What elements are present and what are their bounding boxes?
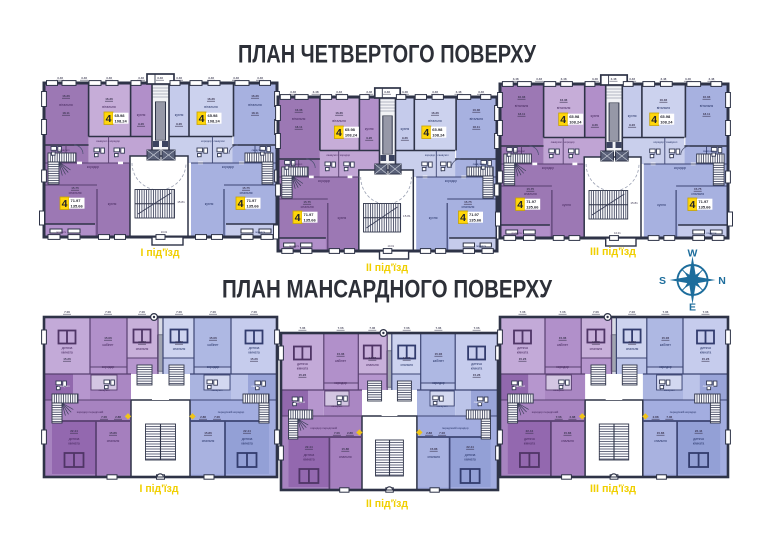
- svg-text:кімната: кімната: [517, 351, 528, 355]
- svg-text:16.36: 16.36: [207, 97, 215, 101]
- svg-text:спальня: спальня: [107, 439, 120, 443]
- svg-text:санвузол: санвузол: [473, 163, 484, 166]
- svg-text:7.06: 7.06: [474, 326, 480, 330]
- svg-text:15.06: 15.06: [104, 336, 112, 340]
- svg-text:3.48: 3.48: [611, 77, 617, 81]
- svg-text:14.77: 14.77: [592, 340, 600, 344]
- svg-text:7.06: 7.06: [435, 326, 441, 330]
- svg-text:кабінет: кабінет: [660, 343, 672, 347]
- svg-text:108.24: 108.24: [115, 119, 128, 124]
- svg-text:передпокій коридор: передпокій коридор: [218, 410, 245, 414]
- svg-text:кухня: кухня: [338, 216, 347, 220]
- svg-text:71.97: 71.97: [247, 198, 258, 203]
- svg-text:15.81: 15.81: [177, 200, 185, 204]
- svg-text:вітальня: вітальня: [292, 117, 306, 121]
- svg-text:15.06: 15.06: [337, 352, 345, 356]
- svg-text:3.48: 3.48: [402, 90, 408, 94]
- svg-text:14.77: 14.77: [403, 356, 411, 360]
- svg-text:дитяча: дитяча: [700, 346, 711, 350]
- svg-text:15.75: 15.75: [303, 200, 311, 204]
- svg-text:3.48: 3.48: [257, 76, 263, 80]
- svg-text:7.06: 7.06: [520, 310, 526, 314]
- svg-text:3.48: 3.48: [478, 90, 484, 94]
- svg-text:кухня: кухня: [108, 202, 117, 206]
- svg-text:спальня: спальня: [202, 439, 215, 443]
- svg-text:18.11: 18.11: [62, 111, 70, 115]
- svg-text:108.24: 108.24: [660, 120, 673, 125]
- svg-text:коридор передпокій: коридор передпокій: [311, 426, 338, 430]
- svg-text:7.06: 7.06: [251, 310, 257, 314]
- svg-text:7.06: 7.06: [662, 310, 668, 314]
- svg-text:спальня: спальня: [136, 347, 149, 351]
- svg-text:коридор передпокій: коридор передпокій: [532, 410, 559, 414]
- svg-text:санвузол: санвузол: [58, 385, 70, 388]
- svg-text:18.11: 18.11: [518, 112, 526, 116]
- svg-text:16.36: 16.36: [703, 95, 711, 99]
- svg-text:вітальня: вітальня: [248, 103, 262, 107]
- svg-text:E: E: [689, 302, 696, 314]
- svg-text:санвузол / коридор: санвузол / коридор: [326, 153, 350, 157]
- svg-text:спальня: спальня: [691, 192, 704, 196]
- svg-text:коридор: коридор: [87, 165, 99, 169]
- svg-text:кухня: кухня: [628, 114, 637, 118]
- svg-text:3.48: 3.48: [708, 77, 714, 81]
- svg-text:7.06: 7.06: [176, 310, 182, 314]
- svg-text:кімната: кімната: [303, 458, 314, 462]
- svg-text:4: 4: [460, 212, 466, 224]
- svg-text:N: N: [718, 275, 726, 287]
- svg-text:спальня: спальня: [561, 439, 574, 443]
- svg-text:спальня: спальня: [626, 347, 639, 351]
- svg-text:кабінет: кабінет: [102, 343, 114, 347]
- svg-text:14.77: 14.77: [369, 356, 377, 360]
- svg-text:15.06: 15.06: [435, 352, 443, 356]
- svg-text:16.36: 16.36: [660, 98, 668, 102]
- svg-text:10.01: 10.01: [161, 230, 168, 234]
- svg-text:коридор / санвузол: коридор / санвузол: [425, 153, 449, 157]
- svg-text:16.36: 16.36: [105, 97, 113, 101]
- svg-text:дитяча: дитяча: [62, 346, 73, 350]
- svg-text:15.86: 15.86: [109, 431, 117, 435]
- svg-text:71.97: 71.97: [71, 198, 82, 203]
- svg-text:108.24: 108.24: [432, 133, 445, 138]
- svg-text:3.48: 3.48: [685, 77, 691, 81]
- svg-text:16.36: 16.36: [335, 111, 343, 115]
- svg-text:вітальня: вітальня: [657, 106, 671, 110]
- svg-text:ІІІ під'їзд: ІІІ під'їзд: [590, 246, 636, 258]
- svg-text:10.01: 10.01: [388, 244, 395, 248]
- svg-text:кімната: кімната: [700, 351, 711, 355]
- svg-text:22.44: 22.44: [526, 429, 534, 433]
- svg-text:дитяча: дитяча: [693, 437, 704, 441]
- svg-text:3.48: 3.48: [384, 90, 390, 94]
- svg-text:спальня: спальня: [366, 363, 379, 367]
- svg-text:3.48: 3.48: [208, 76, 214, 80]
- svg-text:санвузол / коридор: санвузол / коридор: [96, 139, 120, 143]
- svg-text:коридор / санвузол: коридор / санвузол: [201, 139, 225, 143]
- svg-text:18.11: 18.11: [473, 125, 481, 129]
- svg-text:спальня: спальня: [339, 455, 352, 459]
- svg-text:9.26: 9.26: [402, 136, 408, 140]
- svg-text:2.88: 2.88: [347, 431, 353, 435]
- svg-text:7.06: 7.06: [214, 415, 220, 419]
- svg-text:коридор: коридор: [659, 365, 672, 369]
- svg-text:3.48: 3.48: [81, 76, 87, 80]
- svg-text:7.06: 7.06: [369, 326, 375, 330]
- svg-text:спальня: спальня: [400, 363, 413, 367]
- svg-text:15.81: 15.81: [403, 214, 411, 218]
- svg-text:16.36: 16.36: [295, 108, 303, 112]
- svg-text:3.48: 3.48: [233, 76, 239, 80]
- svg-text:подвір'я: подвір'я: [289, 244, 299, 248]
- svg-text:подвір'я: подвір'я: [56, 230, 66, 234]
- svg-text:4: 4: [238, 198, 244, 210]
- svg-text:15.26: 15.26: [63, 357, 71, 361]
- svg-text:7.06: 7.06: [338, 326, 344, 330]
- svg-text:коридор: коридор: [207, 365, 220, 369]
- svg-text:3.48: 3.48: [336, 90, 342, 94]
- svg-text:7.06: 7.06: [139, 310, 145, 314]
- svg-text:14.77: 14.77: [175, 340, 183, 344]
- svg-text:І під'їзд: І під'їзд: [140, 483, 179, 495]
- svg-text:спальня: спальня: [461, 205, 474, 209]
- svg-text:3.48: 3.48: [536, 77, 542, 81]
- svg-text:135.66: 135.66: [698, 205, 711, 210]
- svg-text:кімната: кімната: [61, 351, 72, 355]
- svg-text:спальня: спальня: [301, 205, 314, 209]
- svg-text:дитяча: дитяча: [69, 437, 80, 441]
- svg-text:15.75: 15.75: [694, 187, 702, 191]
- svg-text:3.48: 3.48: [513, 77, 519, 81]
- svg-text:ПЛАН МАНСАРДНОГО ПОВЕРХУ: ПЛАН МАНСАРДНОГО ПОВЕРХУ: [222, 276, 552, 304]
- svg-text:16.36: 16.36: [251, 94, 259, 98]
- svg-text:3.48: 3.48: [561, 77, 567, 81]
- svg-text:7.06: 7.06: [556, 415, 562, 419]
- svg-text:санвузол: санвузол: [664, 389, 675, 392]
- svg-text:135.66: 135.66: [247, 204, 260, 209]
- svg-text:вітальня: вітальня: [204, 105, 218, 109]
- svg-text:коридор: коридор: [222, 165, 234, 169]
- svg-text:4: 4: [62, 198, 68, 210]
- svg-text:дитяча: дитяча: [249, 346, 260, 350]
- svg-text:дитяча: дитяча: [304, 453, 315, 457]
- svg-text:71.97: 71.97: [698, 199, 709, 204]
- svg-text:санвузол: санвузол: [99, 389, 110, 392]
- svg-text:3.48: 3.48: [176, 76, 182, 80]
- svg-text:санвузол: санвузол: [474, 401, 486, 404]
- svg-text:7.06: 7.06: [64, 310, 70, 314]
- svg-text:санвузол: санвузол: [514, 150, 525, 153]
- svg-text:15.26: 15.26: [702, 357, 710, 361]
- svg-text:2.88: 2.88: [653, 415, 659, 419]
- svg-text:кабінет: кабінет: [207, 343, 219, 347]
- svg-text:4: 4: [336, 127, 342, 139]
- svg-text:кімната: кімната: [471, 367, 482, 371]
- svg-text:15.75: 15.75: [464, 200, 472, 204]
- svg-text:15.86: 15.86: [430, 447, 438, 451]
- svg-text:санвузол: санвузол: [703, 150, 714, 153]
- svg-text:подвір'я: подвір'я: [706, 231, 716, 235]
- svg-text:15.75: 15.75: [527, 187, 535, 191]
- svg-text:108.24: 108.24: [569, 120, 582, 125]
- svg-text:2.88: 2.88: [426, 431, 432, 435]
- svg-text:кабінет: кабінет: [335, 359, 347, 363]
- svg-text:дитяча: дитяча: [524, 437, 535, 441]
- svg-text:кухня: кухня: [175, 113, 184, 117]
- svg-text:7.06: 7.06: [560, 310, 566, 314]
- svg-text:16.36: 16.36: [560, 98, 568, 102]
- svg-text:3.48: 3.48: [432, 90, 438, 94]
- svg-text:S: S: [659, 275, 666, 287]
- svg-text:3.48: 3.48: [138, 76, 144, 80]
- svg-text:дитяча: дитяча: [517, 346, 528, 350]
- svg-text:4: 4: [199, 113, 205, 125]
- svg-text:коридор: коридор: [445, 179, 457, 183]
- svg-text:2.88: 2.88: [115, 415, 121, 419]
- svg-text:3.48: 3.48: [57, 76, 63, 80]
- svg-text:7.06: 7.06: [105, 310, 111, 314]
- svg-text:15.06: 15.06: [209, 336, 217, 340]
- svg-text:9.26: 9.26: [629, 123, 635, 127]
- svg-text:15.26: 15.26: [473, 373, 481, 377]
- svg-text:санвузол: санвузол: [703, 385, 715, 388]
- svg-text:санвузол: санвузол: [294, 401, 306, 404]
- svg-text:санвузол: санвузол: [331, 405, 342, 408]
- svg-text:65.98: 65.98: [660, 114, 671, 119]
- svg-text:3.48: 3.48: [313, 90, 319, 94]
- svg-text:15.75: 15.75: [242, 186, 250, 190]
- svg-text:71.97: 71.97: [526, 199, 537, 204]
- svg-text:2.88: 2.88: [569, 415, 575, 419]
- svg-text:2.88: 2.88: [200, 415, 206, 419]
- svg-text:спальня: спальня: [240, 191, 253, 195]
- svg-text:вітальня: вітальня: [700, 104, 714, 108]
- svg-text:16.36: 16.36: [518, 95, 526, 99]
- svg-text:15.86: 15.86: [564, 431, 572, 435]
- svg-text:дитяча: дитяча: [242, 437, 253, 441]
- svg-text:7.06: 7.06: [703, 310, 709, 314]
- svg-text:спальня: спальня: [69, 191, 82, 195]
- svg-text:вітальня: вітальня: [428, 119, 442, 123]
- svg-text:16.36: 16.36: [62, 94, 70, 98]
- svg-text:санвузол: санвузол: [437, 405, 448, 408]
- svg-text:санвузол / коридор: санвузол / коридор: [551, 140, 575, 144]
- svg-text:вітальня: вітальня: [59, 103, 73, 107]
- svg-text:кухня: кухня: [401, 127, 410, 131]
- svg-text:спальня: спальня: [654, 439, 667, 443]
- svg-text:ІІ під'їзд: ІІ під'їзд: [366, 498, 408, 510]
- svg-text:4: 4: [106, 113, 112, 125]
- svg-text:3.48: 3.48: [660, 77, 666, 81]
- svg-text:7.06: 7.06: [439, 431, 445, 435]
- svg-text:65.98: 65.98: [115, 113, 126, 118]
- svg-text:9.26: 9.26: [138, 122, 144, 126]
- svg-text:коридор: коридор: [318, 179, 330, 183]
- svg-text:7.06: 7.06: [210, 310, 216, 314]
- svg-text:коридор: коридор: [542, 166, 554, 170]
- svg-text:ІІІ під'їзд: ІІІ під'їзд: [590, 483, 636, 495]
- svg-text:15.06: 15.06: [662, 336, 670, 340]
- svg-text:вітальня: вітальня: [557, 106, 571, 110]
- svg-text:подвір'я: подвір'я: [255, 230, 265, 234]
- svg-text:спальня: спальня: [524, 192, 537, 196]
- svg-text:кімната: кімната: [464, 458, 475, 462]
- svg-text:7.06: 7.06: [593, 310, 599, 314]
- svg-text:передпокій коридор: передпокій коридор: [670, 410, 697, 414]
- svg-text:22.44: 22.44: [695, 429, 703, 433]
- svg-text:22.44: 22.44: [305, 445, 313, 449]
- svg-text:спальня: спальня: [173, 347, 186, 351]
- svg-text:коридор: коридор: [334, 381, 347, 385]
- svg-text:санвузол: санвузол: [59, 149, 70, 152]
- svg-text:135.66: 135.66: [469, 218, 482, 223]
- svg-text:18.11: 18.11: [295, 125, 303, 129]
- svg-text:кухня: кухня: [429, 216, 438, 220]
- svg-text:9.26: 9.26: [366, 136, 372, 140]
- svg-text:вітальня: вітальня: [332, 119, 346, 123]
- svg-text:15.81: 15.81: [630, 201, 638, 205]
- svg-text:кімната: кімната: [248, 351, 259, 355]
- svg-text:7.06: 7.06: [334, 431, 340, 435]
- svg-text:4: 4: [651, 114, 657, 126]
- svg-text:10.01: 10.01: [614, 231, 621, 235]
- svg-text:вітальня: вітальня: [102, 105, 116, 109]
- svg-text:14.77: 14.77: [138, 340, 146, 344]
- svg-text:4: 4: [517, 199, 523, 211]
- svg-text:подвір'я: подвір'я: [512, 231, 522, 235]
- svg-text:коридор: коридор: [102, 365, 115, 369]
- svg-text:7.06: 7.06: [666, 415, 672, 419]
- svg-text:18.11: 18.11: [251, 111, 259, 115]
- svg-text:кухня: кухня: [365, 127, 374, 131]
- svg-text:передпокій коридор: передпокій коридор: [442, 426, 469, 430]
- svg-text:71.97: 71.97: [304, 212, 315, 217]
- svg-text:108.24: 108.24: [208, 119, 221, 124]
- svg-text:коридор / санвузол: коридор / санвузол: [654, 140, 678, 144]
- svg-text:71.97: 71.97: [469, 212, 480, 217]
- svg-text:І під'їзд: І під'їзд: [141, 247, 180, 259]
- svg-text:подвір'я: подвір'я: [476, 244, 486, 248]
- svg-text:кухня: кухня: [591, 114, 600, 118]
- svg-text:спальня: спальня: [590, 347, 603, 351]
- svg-text:135.66: 135.66: [71, 204, 84, 209]
- svg-text:108.24: 108.24: [345, 133, 358, 138]
- svg-text:7.06: 7.06: [404, 326, 410, 330]
- svg-text:3.48: 3.48: [366, 90, 372, 94]
- svg-text:санвузол: санвузол: [251, 385, 263, 388]
- svg-text:65.98: 65.98: [208, 113, 219, 118]
- svg-text:9.26: 9.26: [592, 123, 598, 127]
- svg-text:135.66: 135.66: [304, 218, 317, 223]
- svg-text:3.48: 3.48: [592, 77, 598, 81]
- svg-text:65.98: 65.98: [569, 114, 580, 119]
- svg-text:7.06: 7.06: [629, 310, 635, 314]
- svg-text:22.44: 22.44: [243, 429, 251, 433]
- svg-text:22.44: 22.44: [70, 429, 78, 433]
- svg-text:15.26: 15.26: [519, 357, 527, 361]
- svg-text:санвузол: санвузол: [514, 385, 526, 388]
- svg-text:16.36: 16.36: [431, 111, 439, 115]
- svg-text:спальня: спальня: [427, 455, 440, 459]
- svg-text:кабінет: кабінет: [433, 359, 445, 363]
- svg-text:санвузол: санвузол: [212, 389, 223, 392]
- svg-text:18.11: 18.11: [703, 112, 711, 116]
- svg-text:3.48: 3.48: [106, 76, 112, 80]
- svg-text:санвузол: санвузол: [553, 389, 564, 392]
- svg-text:15.86: 15.86: [342, 447, 350, 451]
- svg-text:дитяча: дитяча: [297, 362, 308, 366]
- svg-text:ІІ під'їзд: ІІ під'їзд: [366, 262, 408, 274]
- svg-text:9.26: 9.26: [176, 122, 182, 126]
- svg-text:4: 4: [423, 127, 429, 139]
- svg-text:дитяча: дитяча: [465, 453, 476, 457]
- svg-text:кімната: кімната: [297, 367, 308, 371]
- svg-text:санвузол: санвузол: [291, 163, 302, 166]
- svg-text:коридор: коридор: [556, 365, 569, 369]
- svg-text:кухня: кухня: [205, 202, 214, 206]
- svg-text:3.48: 3.48: [290, 90, 296, 94]
- svg-text:вітальня: вітальня: [515, 104, 529, 108]
- svg-text:коридор: коридор: [432, 381, 445, 385]
- svg-text:65.98: 65.98: [432, 127, 443, 132]
- svg-text:санвузол: санвузол: [252, 149, 263, 152]
- svg-text:15.86: 15.86: [657, 431, 665, 435]
- svg-text:3.48: 3.48: [157, 76, 163, 80]
- svg-text:кухня: кухня: [562, 203, 571, 207]
- svg-text:135.66: 135.66: [526, 205, 539, 210]
- svg-text:кімната: кімната: [693, 442, 704, 446]
- svg-text:22.44: 22.44: [466, 445, 474, 449]
- svg-text:65.98: 65.98: [345, 127, 356, 132]
- svg-text:4: 4: [295, 212, 301, 224]
- svg-text:7.06: 7.06: [101, 415, 107, 419]
- svg-text:15.26: 15.26: [250, 357, 258, 361]
- svg-text:кімната: кімната: [241, 442, 252, 446]
- svg-text:дитяча: дитяча: [471, 362, 482, 366]
- svg-text:3.48: 3.48: [629, 77, 635, 81]
- svg-text:3.48: 3.48: [456, 90, 462, 94]
- svg-text:кабінет: кабінет: [557, 343, 569, 347]
- svg-text:вітальня: вітальня: [470, 117, 484, 121]
- svg-text:15.75: 15.75: [71, 186, 79, 190]
- svg-text:14.77: 14.77: [628, 340, 636, 344]
- svg-text:ПЛАН ЧЕТВЕРТОГО ПОВЕРХУ: ПЛАН ЧЕТВЕРТОГО ПОВЕРХУ: [238, 41, 536, 69]
- svg-text:15.26: 15.26: [299, 373, 307, 377]
- svg-text:W: W: [688, 248, 698, 260]
- svg-text:коридор: коридор: [674, 166, 686, 170]
- svg-text:4: 4: [560, 114, 566, 126]
- svg-text:кімната: кімната: [68, 442, 79, 446]
- svg-text:кухня: кухня: [137, 113, 146, 117]
- svg-text:15.06: 15.06: [559, 336, 567, 340]
- svg-text:7.06: 7.06: [299, 326, 305, 330]
- svg-text:коридор передпокій: коридор передпокій: [77, 410, 104, 414]
- svg-text:16.36: 16.36: [473, 108, 481, 112]
- svg-text:кімната: кімната: [524, 442, 535, 446]
- svg-text:4: 4: [689, 199, 695, 211]
- svg-text:15.86: 15.86: [204, 431, 212, 435]
- svg-text:кухня: кухня: [657, 203, 666, 207]
